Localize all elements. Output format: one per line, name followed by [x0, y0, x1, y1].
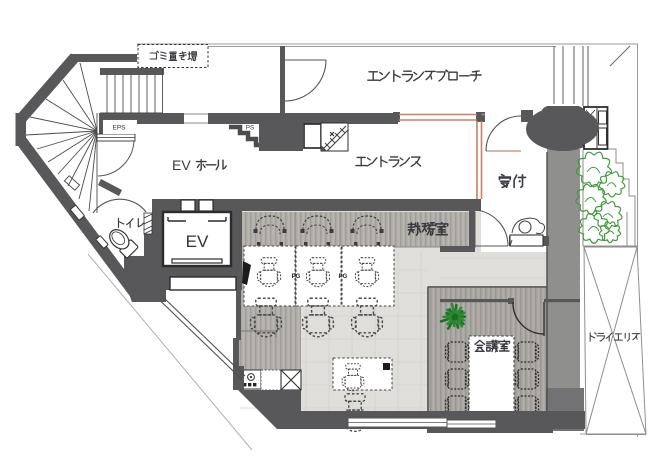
svg-text:EPS: EPS: [112, 125, 126, 132]
svg-text:PG: PG: [339, 274, 348, 280]
svg-text:EV: EV: [186, 232, 209, 251]
svg-text:PS: PS: [246, 125, 254, 132]
svg-text:PG: PG: [292, 274, 301, 280]
svg-text:EV: EV: [172, 157, 191, 173]
